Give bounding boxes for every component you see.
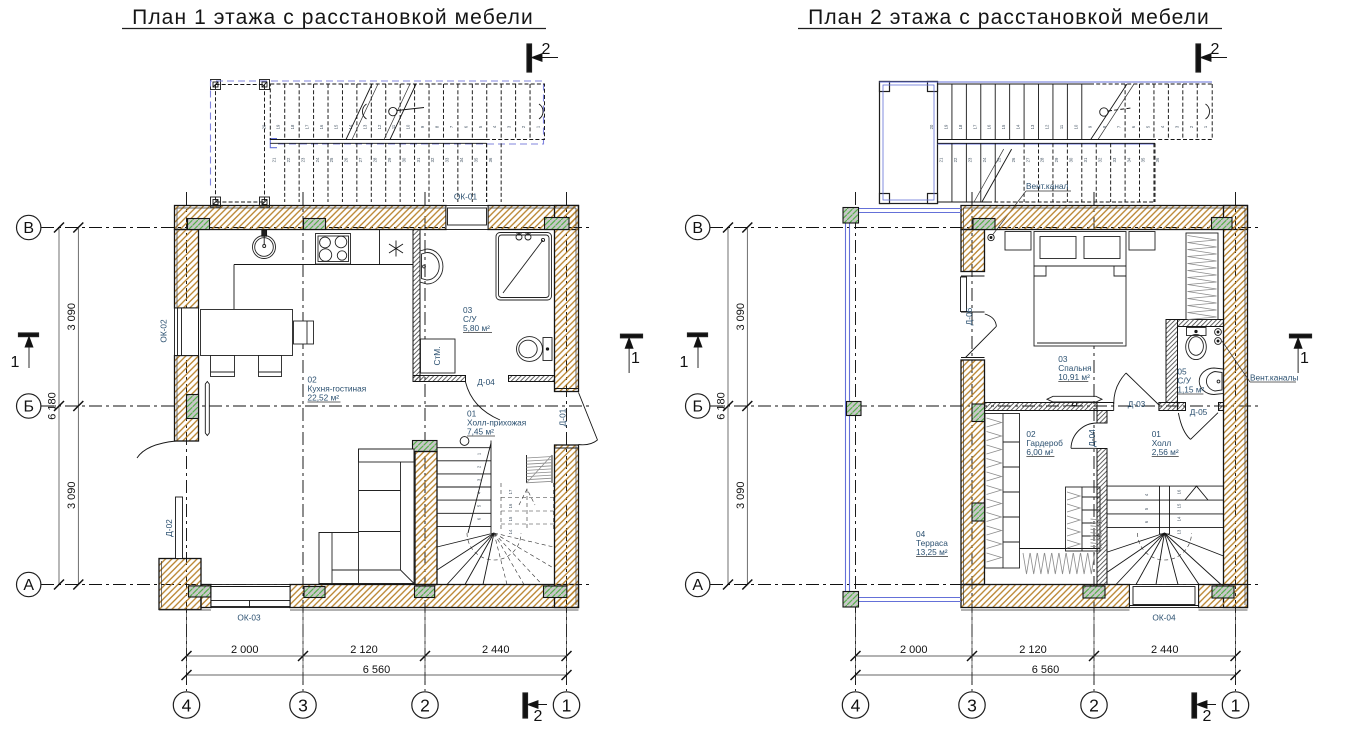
svg-text:13: 13 <box>1177 529 1182 534</box>
svg-text:А: А <box>692 577 703 594</box>
svg-text:19: 19 <box>943 124 948 129</box>
svg-text:3: 3 <box>967 695 977 715</box>
svg-text:3 090: 3 090 <box>735 303 747 331</box>
svg-text:32: 32 <box>1097 157 1102 162</box>
svg-text:18: 18 <box>290 124 295 129</box>
svg-text:20: 20 <box>261 124 266 129</box>
svg-text:Д-06: Д-06 <box>964 307 974 325</box>
svg-text:2 120: 2 120 <box>350 644 378 656</box>
svg-text:14: 14 <box>1177 516 1182 521</box>
svg-text:Д-02: Д-02 <box>164 519 174 537</box>
svg-text:1: 1 <box>1231 695 1241 715</box>
svg-text:А: А <box>23 577 34 594</box>
svg-text:17: 17 <box>972 124 977 129</box>
svg-text:30: 30 <box>401 157 406 162</box>
svg-text:Б: Б <box>23 399 34 416</box>
svg-text:15: 15 <box>333 124 338 129</box>
svg-text:В: В <box>692 220 703 237</box>
svg-text:22,52 м²: 22,52 м² <box>308 393 340 403</box>
svg-text:21: 21 <box>272 157 277 162</box>
svg-text:15: 15 <box>1001 124 1006 129</box>
svg-text:21: 21 <box>939 157 944 162</box>
svg-text:СтМ.: СтМ. <box>432 346 442 365</box>
svg-text:17: 17 <box>305 124 310 129</box>
svg-text:ОК-03: ОК-03 <box>237 613 261 623</box>
svg-text:25: 25 <box>996 157 1001 162</box>
svg-text:5,80 м²: 5,80 м² <box>463 323 490 333</box>
svg-text:11: 11 <box>1059 124 1064 129</box>
svg-text:22: 22 <box>953 157 958 162</box>
svg-text:13: 13 <box>362 124 367 129</box>
svg-text:1: 1 <box>680 354 689 371</box>
svg-text:2: 2 <box>420 695 430 715</box>
svg-text:4: 4 <box>851 695 861 715</box>
svg-text:В: В <box>23 220 34 237</box>
svg-text:14: 14 <box>1016 124 1021 129</box>
svg-text:10,91 м²: 10,91 м² <box>1058 372 1090 382</box>
svg-text:29: 29 <box>1054 157 1059 162</box>
svg-text:2,56 м²: 2,56 м² <box>1152 447 1179 457</box>
svg-text:15: 15 <box>1177 503 1182 508</box>
svg-text:2 000: 2 000 <box>900 644 928 656</box>
svg-text:2: 2 <box>542 41 551 58</box>
svg-text:ОК-04: ОК-04 <box>1152 613 1176 623</box>
svg-text:2 000: 2 000 <box>231 644 259 656</box>
svg-text:6 560: 6 560 <box>363 664 391 676</box>
svg-text:20: 20 <box>929 124 934 129</box>
svg-text:35: 35 <box>474 157 479 162</box>
svg-text:6,00 м²: 6,00 м² <box>1026 447 1053 457</box>
svg-text:2: 2 <box>534 708 543 725</box>
svg-text:27: 27 <box>358 157 363 162</box>
svg-text:3 090: 3 090 <box>66 481 78 509</box>
svg-text:31: 31 <box>1083 157 1088 162</box>
svg-text:2 120: 2 120 <box>1019 644 1047 656</box>
svg-text:2: 2 <box>1211 41 1220 58</box>
svg-text:4: 4 <box>182 695 192 715</box>
svg-text:32: 32 <box>430 157 435 162</box>
svg-text:30: 30 <box>1069 157 1074 162</box>
svg-text:19: 19 <box>276 124 281 129</box>
svg-text:2 440: 2 440 <box>482 644 510 656</box>
svg-text:2: 2 <box>1203 708 1212 725</box>
svg-text:6 560: 6 560 <box>1032 664 1060 676</box>
svg-text:Д-04: Д-04 <box>477 377 495 387</box>
svg-text:10: 10 <box>1073 124 1078 129</box>
svg-text:33: 33 <box>445 157 450 162</box>
svg-text:7,45 м²: 7,45 м² <box>467 427 494 437</box>
svg-text:13,25 м²: 13,25 м² <box>916 547 948 557</box>
svg-text:28: 28 <box>1040 157 1045 162</box>
svg-text:31: 31 <box>416 157 421 162</box>
svg-text:10: 10 <box>406 124 411 129</box>
svg-text:1: 1 <box>1300 350 1309 367</box>
svg-text:Д-01: Д-01 <box>558 408 568 426</box>
svg-text:36: 36 <box>1155 157 1160 162</box>
svg-text:24: 24 <box>315 157 320 162</box>
svg-text:1: 1 <box>11 354 20 371</box>
svg-text:3 090: 3 090 <box>66 303 78 331</box>
svg-text:29: 29 <box>387 157 392 162</box>
svg-text:6 180: 6 180 <box>716 392 728 420</box>
svg-text:Д-05: Д-05 <box>1190 407 1208 417</box>
svg-text:22: 22 <box>286 157 291 162</box>
svg-text:27: 27 <box>1025 157 1030 162</box>
svg-text:34: 34 <box>459 157 464 162</box>
svg-text:12: 12 <box>377 124 382 129</box>
svg-text:ОК-01: ОК-01 <box>454 192 478 202</box>
svg-text:Вент.канал: Вент.канал <box>1026 181 1069 191</box>
svg-text:Б: Б <box>692 399 703 416</box>
svg-text:26: 26 <box>344 157 349 162</box>
svg-text:Вент.каналы: Вент.каналы <box>1250 373 1298 383</box>
svg-text:План 2 этажа с расстановкой ме: План 2 этажа с расстановкой мебели <box>808 6 1210 29</box>
svg-text:36: 36 <box>488 157 493 162</box>
svg-text:16: 16 <box>319 124 324 129</box>
svg-text:План 1 этажа с расстановкой ме: План 1 этажа с расстановкой мебели <box>132 6 534 29</box>
svg-text:24: 24 <box>982 157 987 162</box>
svg-text:33: 33 <box>1112 157 1117 162</box>
svg-text:16: 16 <box>508 503 513 508</box>
svg-text:ОК-02: ОК-02 <box>159 319 169 343</box>
svg-text:1,15 м²: 1,15 м² <box>1177 385 1204 395</box>
svg-text:13: 13 <box>1030 124 1035 129</box>
svg-text:23: 23 <box>968 157 973 162</box>
svg-text:6 180: 6 180 <box>47 392 59 420</box>
svg-text:34: 34 <box>1126 157 1131 162</box>
svg-text:1: 1 <box>631 350 640 367</box>
svg-text:25: 25 <box>329 157 334 162</box>
svg-text:23: 23 <box>300 157 305 162</box>
svg-text:12: 12 <box>1044 124 1049 129</box>
svg-text:2 440: 2 440 <box>1151 644 1179 656</box>
svg-text:14: 14 <box>508 529 513 534</box>
svg-text:26: 26 <box>1011 157 1016 162</box>
svg-text:16: 16 <box>1177 489 1182 494</box>
svg-text:3 090: 3 090 <box>735 481 747 509</box>
svg-text:28: 28 <box>373 157 378 162</box>
svg-text:16: 16 <box>987 124 992 129</box>
svg-text:35: 35 <box>1141 157 1146 162</box>
svg-text:Д-03: Д-03 <box>1128 399 1146 409</box>
svg-text:17: 17 <box>508 489 513 494</box>
svg-text:3: 3 <box>298 695 308 715</box>
svg-text:15: 15 <box>508 516 513 521</box>
svg-text:Д-04: Д-04 <box>1087 429 1097 447</box>
svg-text:18: 18 <box>958 124 963 129</box>
svg-text:2: 2 <box>1089 695 1099 715</box>
svg-text:1: 1 <box>562 695 572 715</box>
